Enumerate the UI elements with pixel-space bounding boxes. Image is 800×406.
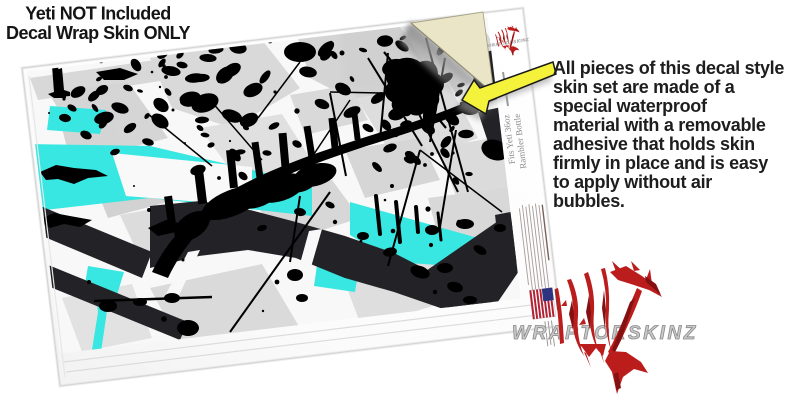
svg-text:bubbles.: bubbles. bbox=[553, 191, 625, 211]
svg-text:to apply without air: to apply without air bbox=[553, 172, 712, 192]
svg-text:special waterproof: special waterproof bbox=[553, 96, 708, 116]
svg-text:Yeti NOT Included: Yeti NOT Included bbox=[25, 4, 171, 24]
svg-text:All pieces of this decal style: All pieces of this decal style bbox=[553, 58, 784, 78]
svg-text:firmly in place and is easy: firmly in place and is easy bbox=[553, 153, 768, 173]
svg-text:Decal Wrap Skin ONLY: Decal Wrap Skin ONLY bbox=[6, 23, 191, 43]
svg-text:adhesive that holds skin: adhesive that holds skin bbox=[553, 134, 755, 154]
svg-text:material with a removable: material with a removable bbox=[553, 115, 766, 135]
svg-text:skin set are made of a: skin set are made of a bbox=[553, 77, 736, 97]
